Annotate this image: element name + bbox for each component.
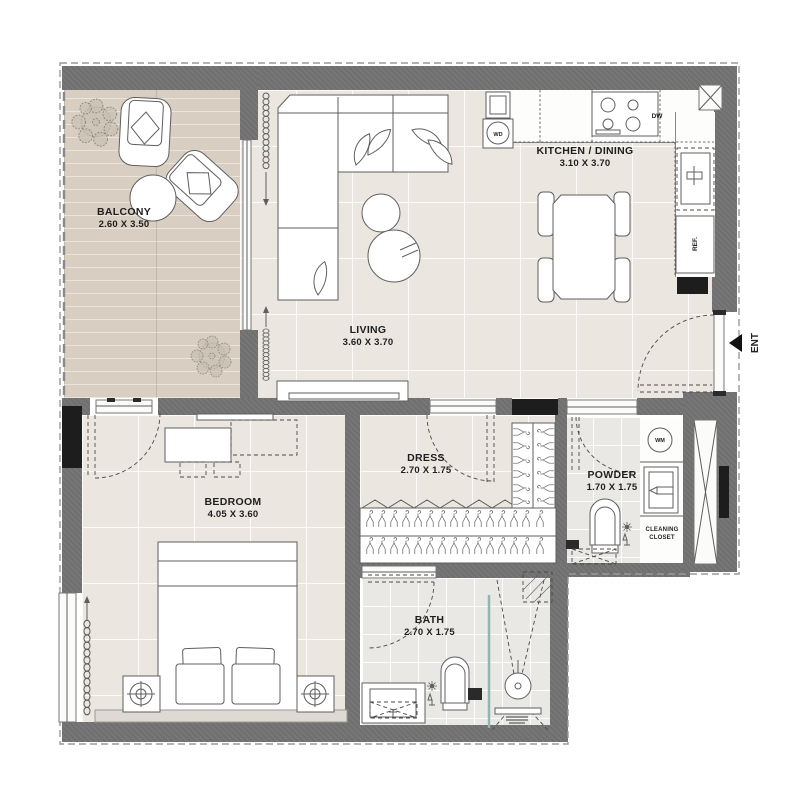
curtain-living-lower <box>263 306 269 380</box>
cleaning-closet-label: CLEANING CLOSET <box>634 527 690 543</box>
powder-accessory <box>622 522 632 532</box>
refrigerator-label: REF. <box>692 237 699 251</box>
bath-label: BATH 2.70 X 1.75 <box>372 614 487 639</box>
powder-label: POWDER 1.70 X 1.75 <box>562 469 662 494</box>
dishwasher-label: DW <box>652 113 664 120</box>
balcony-label: BALCONY 2.60 X 3.50 <box>64 206 184 231</box>
dining-table <box>538 192 630 302</box>
bedroom-balcony-door <box>88 398 160 478</box>
curtain-living-upper <box>263 93 269 206</box>
sofa <box>278 95 457 300</box>
entry-door <box>638 310 726 396</box>
washer-dryer-label: WD <box>493 132 502 138</box>
bath-toilet <box>441 657 469 710</box>
dress-label: DRESS 2.70 X 1.75 <box>366 452 486 477</box>
bath-accessory <box>427 681 437 691</box>
plan-linework: WD DW REF. WM ENT <box>0 0 800 800</box>
balcony-living-window <box>243 140 251 330</box>
living-label: LIVING 3.60 X 3.70 <box>308 324 428 349</box>
tv-console <box>277 381 408 401</box>
wardrobe-bottom <box>360 500 556 563</box>
powder-lamp <box>623 534 630 545</box>
balcony-armchair-1 <box>118 97 171 168</box>
kitchen-sink-unit <box>677 148 714 210</box>
powder-toilet <box>590 499 620 553</box>
washing-machine <box>640 428 683 462</box>
balcony-tree-top <box>72 99 118 146</box>
bedroom-desk <box>165 414 297 477</box>
shower <box>489 572 552 730</box>
powder-door <box>567 400 637 473</box>
floor-plan: WD DW REF. WM ENT BALCONY 2.60 X 3.50 LI… <box>0 0 800 800</box>
washing-machine-label: WM <box>655 438 665 444</box>
stove <box>592 92 658 136</box>
nightstand-left <box>123 676 160 712</box>
bath-vanity <box>362 683 425 723</box>
balcony-tree-bottom <box>191 336 231 377</box>
kitchen-dining-label: KITCHEN / DINING 3.10 X 3.70 <box>520 145 650 170</box>
bath-cabinet <box>468 688 482 700</box>
bed <box>158 542 297 710</box>
bath-lamp <box>428 694 435 705</box>
vent-box <box>699 85 722 110</box>
coffee-tables <box>362 194 420 282</box>
entrance-label: ENT <box>750 333 761 353</box>
curtain-bedroom <box>59 593 90 722</box>
shaft <box>694 420 717 564</box>
entry-arrow <box>729 334 742 352</box>
nightstand-right <box>297 676 334 712</box>
powder-bin <box>566 540 579 549</box>
bedroom-label: BEDROOM 4.05 X 3.60 <box>173 496 293 521</box>
wardrobe-right <box>512 423 555 508</box>
